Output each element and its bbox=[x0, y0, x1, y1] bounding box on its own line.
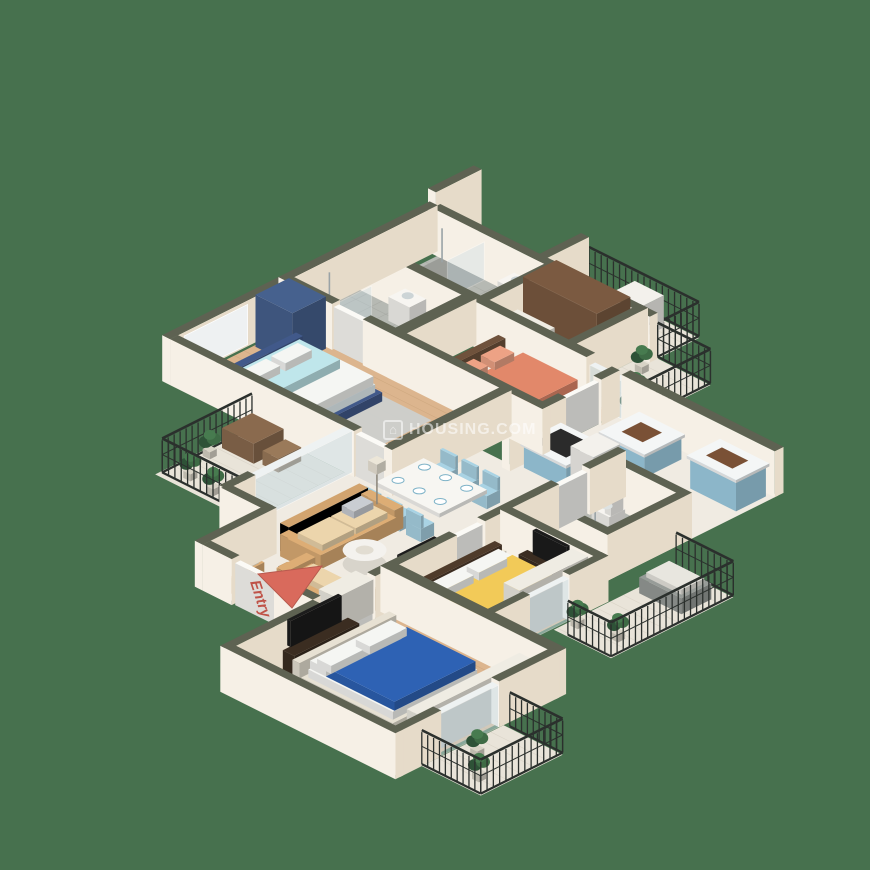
floor-plan-stage: Entry ⌂ HOUSING.COM bbox=[0, 0, 870, 870]
floor-plan-3d-render: Entry bbox=[0, 0, 870, 870]
